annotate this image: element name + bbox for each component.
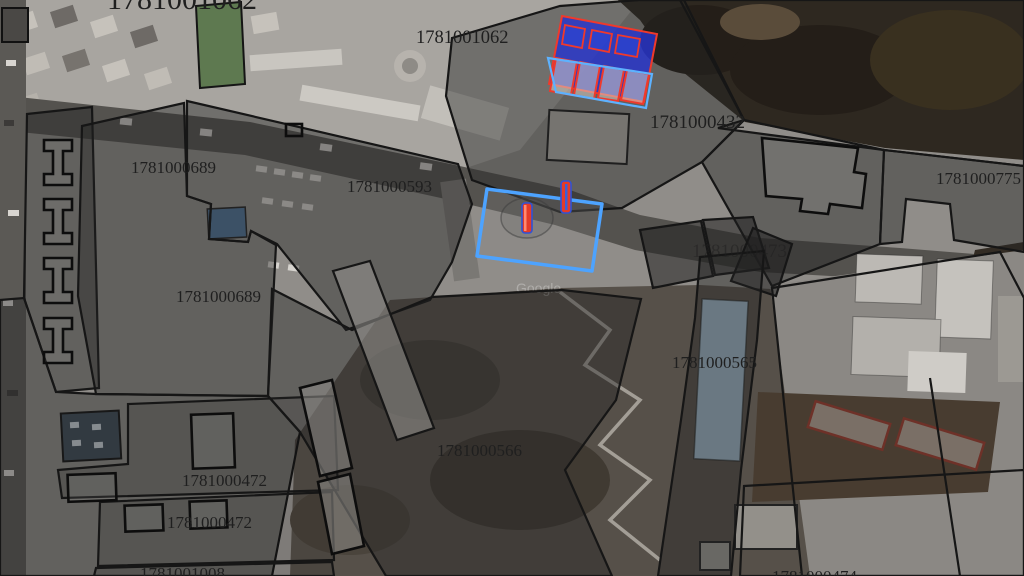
parcel-label: 1781000689 — [131, 158, 216, 177]
tree-patch — [720, 4, 800, 40]
parcel-label: 1781000566 — [437, 441, 522, 460]
parcel-label: 1781000593 — [347, 177, 432, 196]
map-viewport[interactable]: Google1781001062178100106217810004321781… — [0, 0, 1024, 576]
white-building — [935, 259, 994, 339]
car — [6, 60, 16, 66]
car — [4, 120, 14, 126]
parcel-label: 1781000472 — [167, 513, 252, 532]
highlight-unit-outline[interactable] — [562, 25, 585, 48]
cadastral-satellite-map[interactable]: Google1781001062178100106217810004321781… — [0, 0, 1024, 576]
highlight-unit-lower[interactable] — [621, 70, 649, 104]
parcel-label: 1781000689 — [176, 287, 261, 306]
map-marker[interactable] — [522, 203, 532, 233]
tree-mass — [870, 10, 1024, 110]
parcel-label: 1781001008 — [140, 564, 225, 576]
plaza-circle-inner — [402, 58, 418, 74]
highlight-unit-outline[interactable] — [615, 35, 640, 57]
corner-building — [2, 8, 28, 42]
footprint-small — [191, 413, 235, 468]
parcel-label: 1781000474 — [772, 567, 858, 576]
footprint-small — [68, 473, 117, 502]
parcel-label: 1781000472 — [182, 471, 267, 490]
car — [8, 210, 19, 216]
white-building — [998, 296, 1024, 382]
map-marker-stripe — [524, 205, 527, 231]
map-marker-stripe — [565, 184, 568, 210]
highlight-unit-lower[interactable] — [550, 58, 577, 95]
gray-building — [735, 505, 797, 549]
white-building — [855, 254, 923, 304]
parcel-label: 1781000775 — [936, 169, 1021, 188]
parcel-label: 1781001062 — [107, 0, 257, 16]
footprint-small — [125, 504, 164, 531]
highlight-unit-outline[interactable] — [589, 30, 612, 52]
parcel-label: 1781000565 — [672, 353, 757, 372]
parcel-label: 1781001062 — [416, 28, 509, 48]
white-building — [907, 351, 966, 393]
parcel-label: 1781000432 — [650, 112, 745, 133]
parcel-label: 1781000473 — [692, 241, 787, 262]
